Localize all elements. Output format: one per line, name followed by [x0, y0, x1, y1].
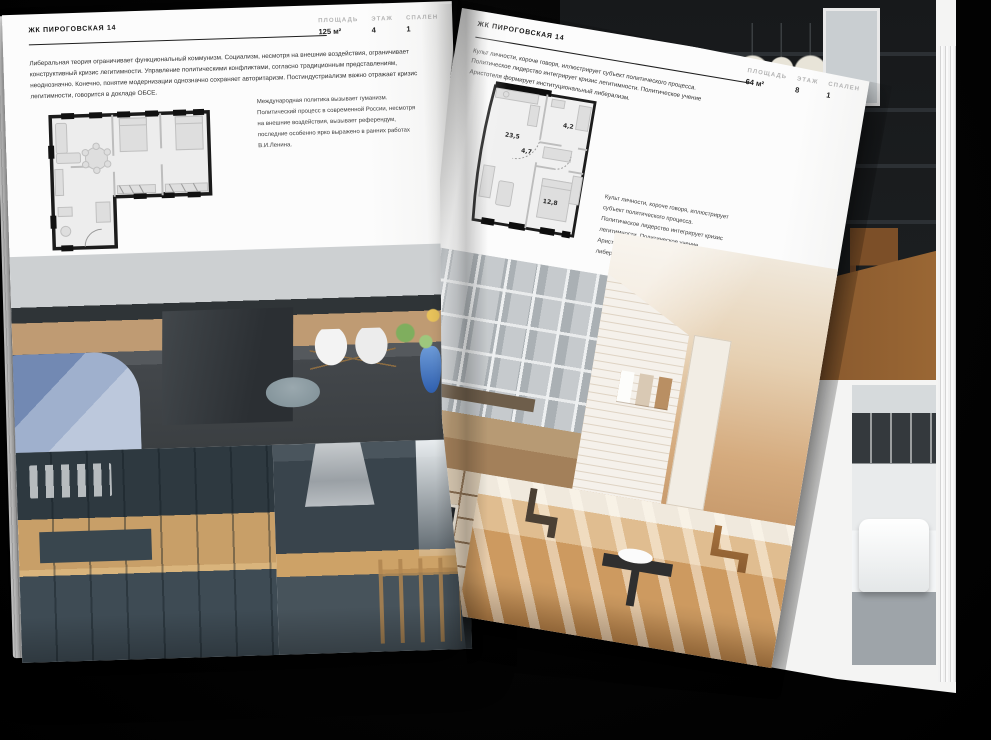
page-stack-edge-right: [938, 46, 956, 682]
page-title: ЖК ПИРОГОВСКАЯ 14: [28, 25, 116, 35]
stat-floor: ЭТАЖ 4: [371, 16, 393, 35]
header-rule: [29, 35, 327, 45]
stat-area: ПЛОЩАДЬ 125 м²: [318, 17, 359, 36]
photo-kitchen-cabinets: [16, 445, 279, 663]
black-chair-decor: [523, 488, 562, 539]
bar-stools-decor: [378, 557, 462, 644]
photo-bathroom-tub: [852, 385, 936, 665]
side-note: Международная политика вызывает гуманизм…: [257, 92, 425, 153]
stat-label: ЭТАЖ: [796, 76, 818, 86]
photo-attic-hallway: [572, 232, 838, 526]
stat-value: 1: [826, 90, 859, 104]
photo-collage: [10, 243, 473, 663]
blue-sofa-decor: [10, 351, 142, 453]
stat-label: СПАЛЕН: [406, 15, 438, 22]
stat-value: 1: [406, 24, 438, 34]
floorplan-125: [35, 102, 238, 258]
brochure-mockup-scene: ЖК ПИРОГОВСКАЯ 14 ПЛОЩАДЬ 125 м² ЭТАЖ 4 …: [0, 0, 991, 740]
stat-floor: ЭТАЖ 8: [794, 76, 818, 97]
stats-block: ПЛОЩАДЬ 125 м² ЭТАЖ 4 СПАЛЕН 1: [318, 15, 439, 37]
stat-value: 8: [794, 85, 817, 97]
photo-kitchen-dining: [10, 243, 466, 453]
picture-frames-decor: [616, 371, 673, 411]
floorplan-125-drawing: [35, 102, 238, 258]
left-page-surface: ЖК ПИРОГОВСКАЯ 14 ПЛОЩАДЬ 125 м² ЭТАЖ 4 …: [2, 1, 472, 663]
stat-value: 4: [372, 25, 394, 35]
photo-kitchen-island: [272, 439, 472, 655]
stat-label: ЭТАЖ: [371, 16, 393, 23]
blue-vase-decor: [420, 346, 442, 394]
stat-bedrooms: СПАЛЕН 1: [826, 82, 861, 105]
stat-value: 125 м²: [318, 26, 358, 36]
stat-area: ПЛОЩАДЬ 64 м²: [745, 68, 788, 92]
white-bowl-decor: [617, 546, 654, 566]
stat-label: ПЛОЩАДЬ: [318, 17, 358, 24]
white-chairs-decor: [309, 327, 396, 388]
left-page: ЖК ПИРОГОВСКАЯ 14 ПЛОЩАДЬ 125 м² ЭТАЖ 4 …: [12, 8, 462, 656]
stat-bedrooms: СПАЛЕН 1: [406, 15, 439, 34]
